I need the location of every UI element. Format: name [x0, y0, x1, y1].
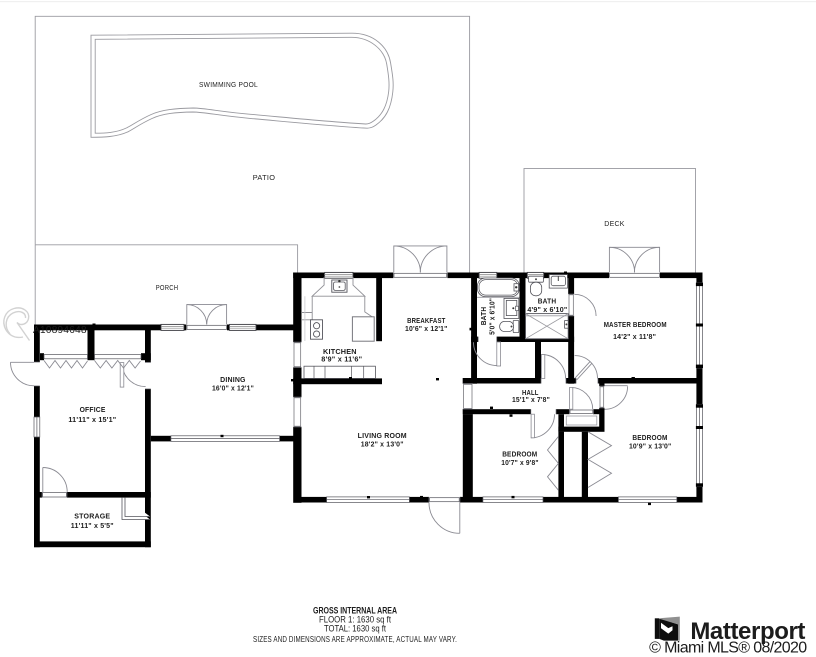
svg-text:TOTAL: 1630 sq ft: TOTAL: 1630 sq ft — [324, 624, 386, 634]
svg-text:18'2" x 13'0": 18'2" x 13'0" — [361, 440, 404, 449]
svg-text:5'0" x 6'10": 5'0" x 6'10" — [488, 298, 497, 335]
svg-text:11'11" x 15'1": 11'11" x 15'1" — [68, 415, 116, 424]
svg-text:OFFICE: OFFICE — [80, 405, 106, 414]
svg-text:10'6" x 12'1": 10'6" x 12'1" — [405, 324, 448, 333]
svg-text:10'7" x 9'8": 10'7" x 9'8" — [501, 458, 539, 467]
svg-text:BEDROOM: BEDROOM — [632, 433, 667, 442]
svg-text:4'9" x 6'10": 4'9" x 6'10" — [527, 305, 567, 314]
svg-text:STORAGE: STORAGE — [74, 512, 110, 521]
svg-text:11'11" x 5'5": 11'11" x 5'5" — [71, 521, 114, 530]
svg-text:10'9" x 13'0": 10'9" x 13'0" — [629, 442, 672, 451]
svg-text:SIZES AND DIMENSIONS ARE APPRO: SIZES AND DIMENSIONS ARE APPROXIMATE, AC… — [253, 635, 457, 644]
svg-text:SWIMMING POOL: SWIMMING POOL — [199, 80, 258, 89]
svg-text:PATIO: PATIO — [253, 173, 276, 182]
svg-text:14'2" x 11'8": 14'2" x 11'8" — [613, 332, 656, 341]
svg-text:8'9" x 11'6": 8'9" x 11'6" — [321, 355, 362, 364]
svg-text:MASTER BEDROOM: MASTER BEDROOM — [604, 320, 667, 329]
svg-text:© Miami MLS® 08/2020: © Miami MLS® 08/2020 — [649, 640, 807, 657]
svg-text:A10894648: A10894648 — [33, 325, 87, 336]
svg-text:16'0" x 12'1": 16'0" x 12'1" — [212, 383, 254, 392]
svg-text:DECK: DECK — [604, 219, 625, 228]
svg-text:PORCH: PORCH — [156, 283, 179, 292]
svg-text:15'1" x 7'8": 15'1" x 7'8" — [512, 395, 550, 404]
